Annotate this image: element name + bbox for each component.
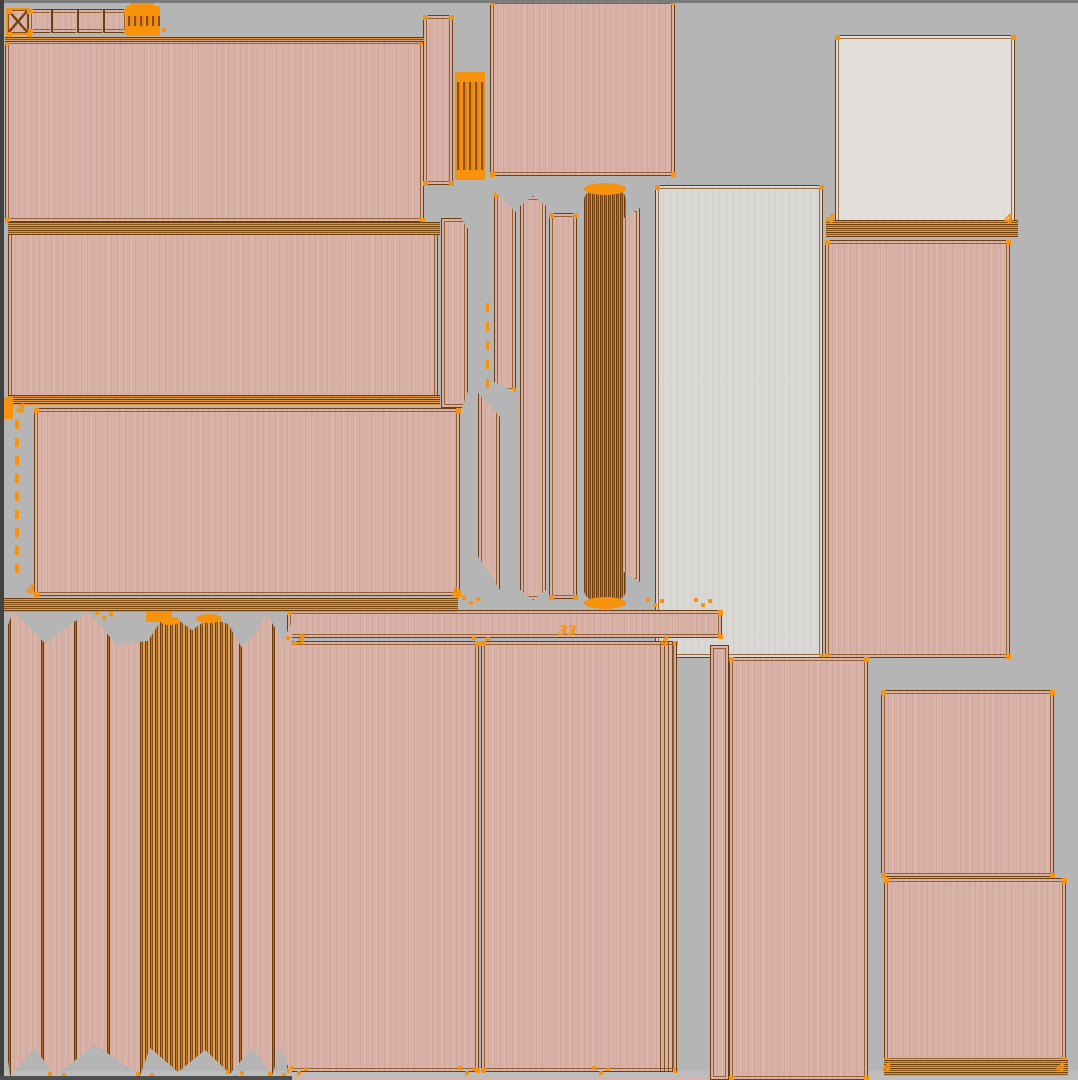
uv-vertex-dot[interactable] [494, 388, 499, 393]
island-number-label: 4 [14, 403, 26, 416]
uv-island-tiny-square[interactable] [6, 8, 30, 35]
dashed-selected-edge[interactable] [15, 564, 19, 573]
top-edge-line [0, 0, 1078, 3]
vertex-dot-cluster[interactable] [694, 598, 712, 607]
uv-vertex-dot[interactable] [1006, 654, 1011, 659]
uv-island-mid-dense[interactable] [584, 188, 626, 602]
dashed-selected-edge[interactable] [15, 474, 19, 483]
island-inner-edge [484, 644, 674, 1069]
selected-arc-edge[interactable] [196, 614, 222, 623]
uv-vertex-dot[interactable] [465, 1071, 469, 1075]
stacked-edge-band-right-bottom-band[interactable] [884, 1060, 1068, 1076]
vertex-dot-cluster[interactable] [646, 598, 664, 607]
dashed-selected-edge[interactable] [15, 492, 19, 501]
uv-island-light-rect[interactable] [655, 185, 823, 658]
uv-vertex-dot[interactable] [542, 196, 547, 201]
uv-vertex-dot[interactable] [599, 1071, 603, 1075]
uv-island-cluster-1[interactable] [455, 72, 485, 180]
island-inner-edge [426, 18, 450, 182]
uv-vertex-dot[interactable] [481, 1068, 486, 1073]
dashed-selected-edge[interactable] [15, 438, 19, 447]
accordion-dense-pleats [140, 616, 234, 1078]
uv-vertex-dot[interactable] [653, 603, 657, 607]
uv-vertex-dot[interactable] [226, 1070, 230, 1074]
dashed-selected-edge[interactable] [15, 528, 19, 537]
uv-island-right-mid[interactable] [881, 690, 1054, 877]
uv-vertex-dot[interactable] [701, 603, 705, 607]
uv-vertex-dot[interactable] [512, 192, 517, 197]
uv-vertex-dot[interactable] [825, 240, 830, 245]
uv-island-right-big[interactable] [825, 240, 1010, 658]
uv-vertex-dot[interactable] [592, 1066, 596, 1070]
uv-vertex-dot[interactable] [28, 29, 33, 34]
uv-vertex-dot[interactable] [646, 598, 650, 602]
uv-vertex-dot[interactable] [102, 616, 106, 620]
vertex-dot-cluster[interactable] [290, 1066, 308, 1075]
island-inner-edge [493, 3, 672, 173]
island-number-label: 33 [556, 625, 577, 638]
uv-vertex-dot[interactable] [1011, 35, 1016, 40]
uv-vertex-dot[interactable] [109, 612, 113, 616]
uv-vertex-dot[interactable] [718, 610, 723, 615]
uv-editor-canvas[interactable]: 44b33434444 [0, 0, 1078, 1080]
uv-vertex-dot[interactable] [304, 1067, 308, 1071]
dashed-selected-edge[interactable] [15, 456, 19, 465]
uv-island-mid-strip-4[interactable] [622, 208, 640, 582]
uv-vertex-dot[interactable] [472, 1067, 476, 1071]
uv-vertex-dot[interactable] [655, 185, 660, 190]
uv-vertex-dot[interactable] [423, 15, 428, 20]
uv-vertex-dot[interactable] [449, 15, 454, 20]
island-inner-edge [828, 243, 1007, 655]
dashed-selected-edge[interactable] [15, 546, 19, 555]
uv-island-mid-strip-1[interactable] [494, 192, 516, 392]
uv-vertex-dot[interactable] [549, 213, 554, 218]
uv-vertex-dot[interactable] [486, 637, 490, 641]
island-inner-edge [887, 881, 1063, 1059]
uv-vertex-dot[interactable] [28, 9, 33, 14]
stacked-edge-band-right-top-band[interactable] [826, 220, 1018, 237]
selected-arc-edge[interactable] [584, 597, 626, 609]
uv-vertex-dot[interactable] [671, 172, 676, 177]
uv-vertex-dot[interactable] [606, 1067, 610, 1071]
uv-vertex-dot[interactable] [95, 611, 99, 615]
uv-island-mid-strip-3[interactable] [549, 213, 577, 599]
cell-divider-edge[interactable] [102, 10, 105, 33]
uv-island-bottom-mid-2[interactable] [481, 641, 677, 1072]
uv-vertex-dot[interactable] [1006, 240, 1011, 245]
island-inner-edge [444, 221, 465, 405]
island-inner-edge [658, 188, 820, 655]
uv-vertex-dot[interactable] [148, 27, 152, 31]
uv-vertex-dot[interactable] [1050, 690, 1055, 695]
island-inner-edge [481, 396, 497, 587]
uv-island-mid-strip-0[interactable] [478, 393, 500, 590]
uv-island-mid-strip-2[interactable] [520, 196, 546, 600]
uv-vertex-dot[interactable] [240, 1071, 244, 1075]
island-inner-edge [732, 660, 865, 1077]
uv-vertex-dot[interactable] [456, 408, 461, 413]
vertex-dot-cluster[interactable] [148, 27, 166, 36]
island-inner-edge [713, 648, 726, 1077]
island-inner-edge [552, 216, 574, 596]
vertex-dot-cluster[interactable] [472, 636, 490, 645]
uv-island-bottom-right-rect[interactable] [729, 657, 868, 1080]
island-inner-edge [37, 411, 457, 593]
dashed-selected-edge[interactable] [486, 379, 489, 388]
uv-vertex-dot[interactable] [512, 388, 517, 393]
dashed-selected-edge[interactable] [15, 510, 19, 519]
uv-vertex-dot[interactable] [286, 636, 290, 640]
uv-island-strip-a[interactable] [423, 15, 453, 185]
island-inner-edge [290, 613, 719, 635]
uv-vertex-dot[interactable] [458, 1066, 462, 1070]
uv-vertex-dot[interactable] [549, 595, 554, 600]
uv-island-accordion-region[interactable] [8, 610, 292, 1078]
uv-vertex-dot[interactable] [1062, 878, 1067, 883]
uv-vertex-dot[interactable] [494, 192, 499, 197]
vertex-cluster-blob[interactable] [146, 612, 172, 622]
uv-island-big-rect-1[interactable] [5, 40, 424, 222]
uv-vertex-dot[interactable] [490, 172, 495, 177]
uv-vertex-dot[interactable] [469, 601, 473, 605]
vertex-dot-cluster[interactable] [458, 1066, 476, 1075]
uv-vertex-dot[interactable] [835, 35, 840, 40]
uv-vertex-dot[interactable] [864, 657, 869, 662]
left-edge-bar [0, 0, 4, 1080]
vertex-dot-cluster[interactable] [592, 1066, 610, 1075]
uv-vertex-dot[interactable] [573, 213, 578, 218]
island-inner-edge [290, 644, 476, 1069]
uv-island-bottom-mid-1[interactable] [287, 641, 479, 1072]
uv-vertex-dot[interactable] [155, 32, 159, 36]
uv-vertex-dot[interactable] [423, 181, 428, 186]
uv-vertex-dot[interactable] [290, 1066, 294, 1070]
uv-island-right-top-light[interactable] [835, 35, 1015, 225]
uv-vertex-dot[interactable] [476, 597, 480, 601]
uv-vertex-dot[interactable] [660, 599, 664, 603]
dashed-selected-edge[interactable] [15, 420, 19, 429]
uv-island-bevel-strip[interactable] [441, 218, 468, 408]
uv-vertex-dot[interactable] [708, 599, 712, 603]
vertex-dot-cluster[interactable] [462, 596, 480, 605]
cell-divider-edge[interactable] [76, 10, 79, 33]
uv-vertex-dot[interactable] [297, 1071, 301, 1075]
uv-vertex-dot[interactable] [729, 657, 734, 662]
uv-island-rect-top-mid[interactable] [490, 0, 675, 176]
stacked-edge-band-rect2-bottom-band[interactable] [8, 395, 440, 405]
uv-island-bottom-mid-2-seam[interactable] [660, 642, 678, 1071]
dashed-selected-edge[interactable] [486, 341, 489, 350]
island-inner-edge [625, 211, 637, 579]
stacked-edge-band-left-hstack-band[interactable] [0, 598, 458, 612]
uv-vertex-dot[interactable] [462, 596, 466, 600]
uv-vertex-dot[interactable] [7, 9, 12, 14]
vertex-dot-cluster[interactable] [95, 611, 113, 620]
dashed-selected-edge[interactable] [486, 322, 489, 331]
island-inner-edge [523, 199, 543, 597]
island-inner-edge [838, 38, 1012, 222]
uv-vertex-dot[interactable] [472, 636, 476, 640]
dashed-selected-edge[interactable] [486, 303, 489, 312]
uv-island-big-rect-2[interactable] [8, 226, 438, 404]
uv-vertex-dot[interactable] [520, 596, 525, 601]
island-inner-edge [884, 693, 1051, 874]
uv-vertex-dot[interactable] [881, 690, 886, 695]
uv-vertex-dot[interactable] [34, 592, 39, 597]
uv-vertex-dot[interactable] [864, 1076, 869, 1080]
uv-vertex-dot[interactable] [520, 196, 525, 201]
island-inner-edge [497, 195, 513, 389]
uv-island-bottom-right-strip[interactable] [710, 645, 729, 1080]
uv-vertex-dot[interactable] [162, 28, 166, 32]
uv-vertex-dot[interactable] [573, 595, 578, 600]
dashed-selected-edge[interactable] [486, 360, 489, 369]
uv-vertex-dot[interactable] [819, 185, 824, 190]
island-inner-edge [8, 43, 421, 219]
uv-island-right-bottom[interactable] [884, 878, 1066, 1062]
uv-vertex-dot[interactable] [449, 181, 454, 186]
island-inner-edge [11, 229, 435, 401]
bottom-dark-line [0, 1076, 292, 1080]
uv-island-big-rect-3[interactable] [34, 408, 460, 596]
uv-vertex-dot[interactable] [729, 1076, 734, 1080]
uv-vertex-dot[interactable] [542, 596, 547, 601]
stacked-edge-band-rect1-top-band[interactable] [5, 37, 424, 42]
uv-island-horizontal-band[interactable] [287, 610, 722, 638]
stacked-edge-band-rect2-top-band[interactable] [8, 222, 440, 235]
uv-vertex-dot[interactable] [34, 408, 39, 413]
uv-vertex-dot[interactable] [884, 878, 889, 883]
selected-arc-edge[interactable] [584, 183, 626, 195]
uv-vertex-dot[interactable] [718, 634, 723, 639]
uv-vertex-dot[interactable] [694, 598, 698, 602]
cell-divider-edge[interactable] [50, 10, 53, 33]
uv-vertex-dot[interactable] [479, 641, 483, 645]
